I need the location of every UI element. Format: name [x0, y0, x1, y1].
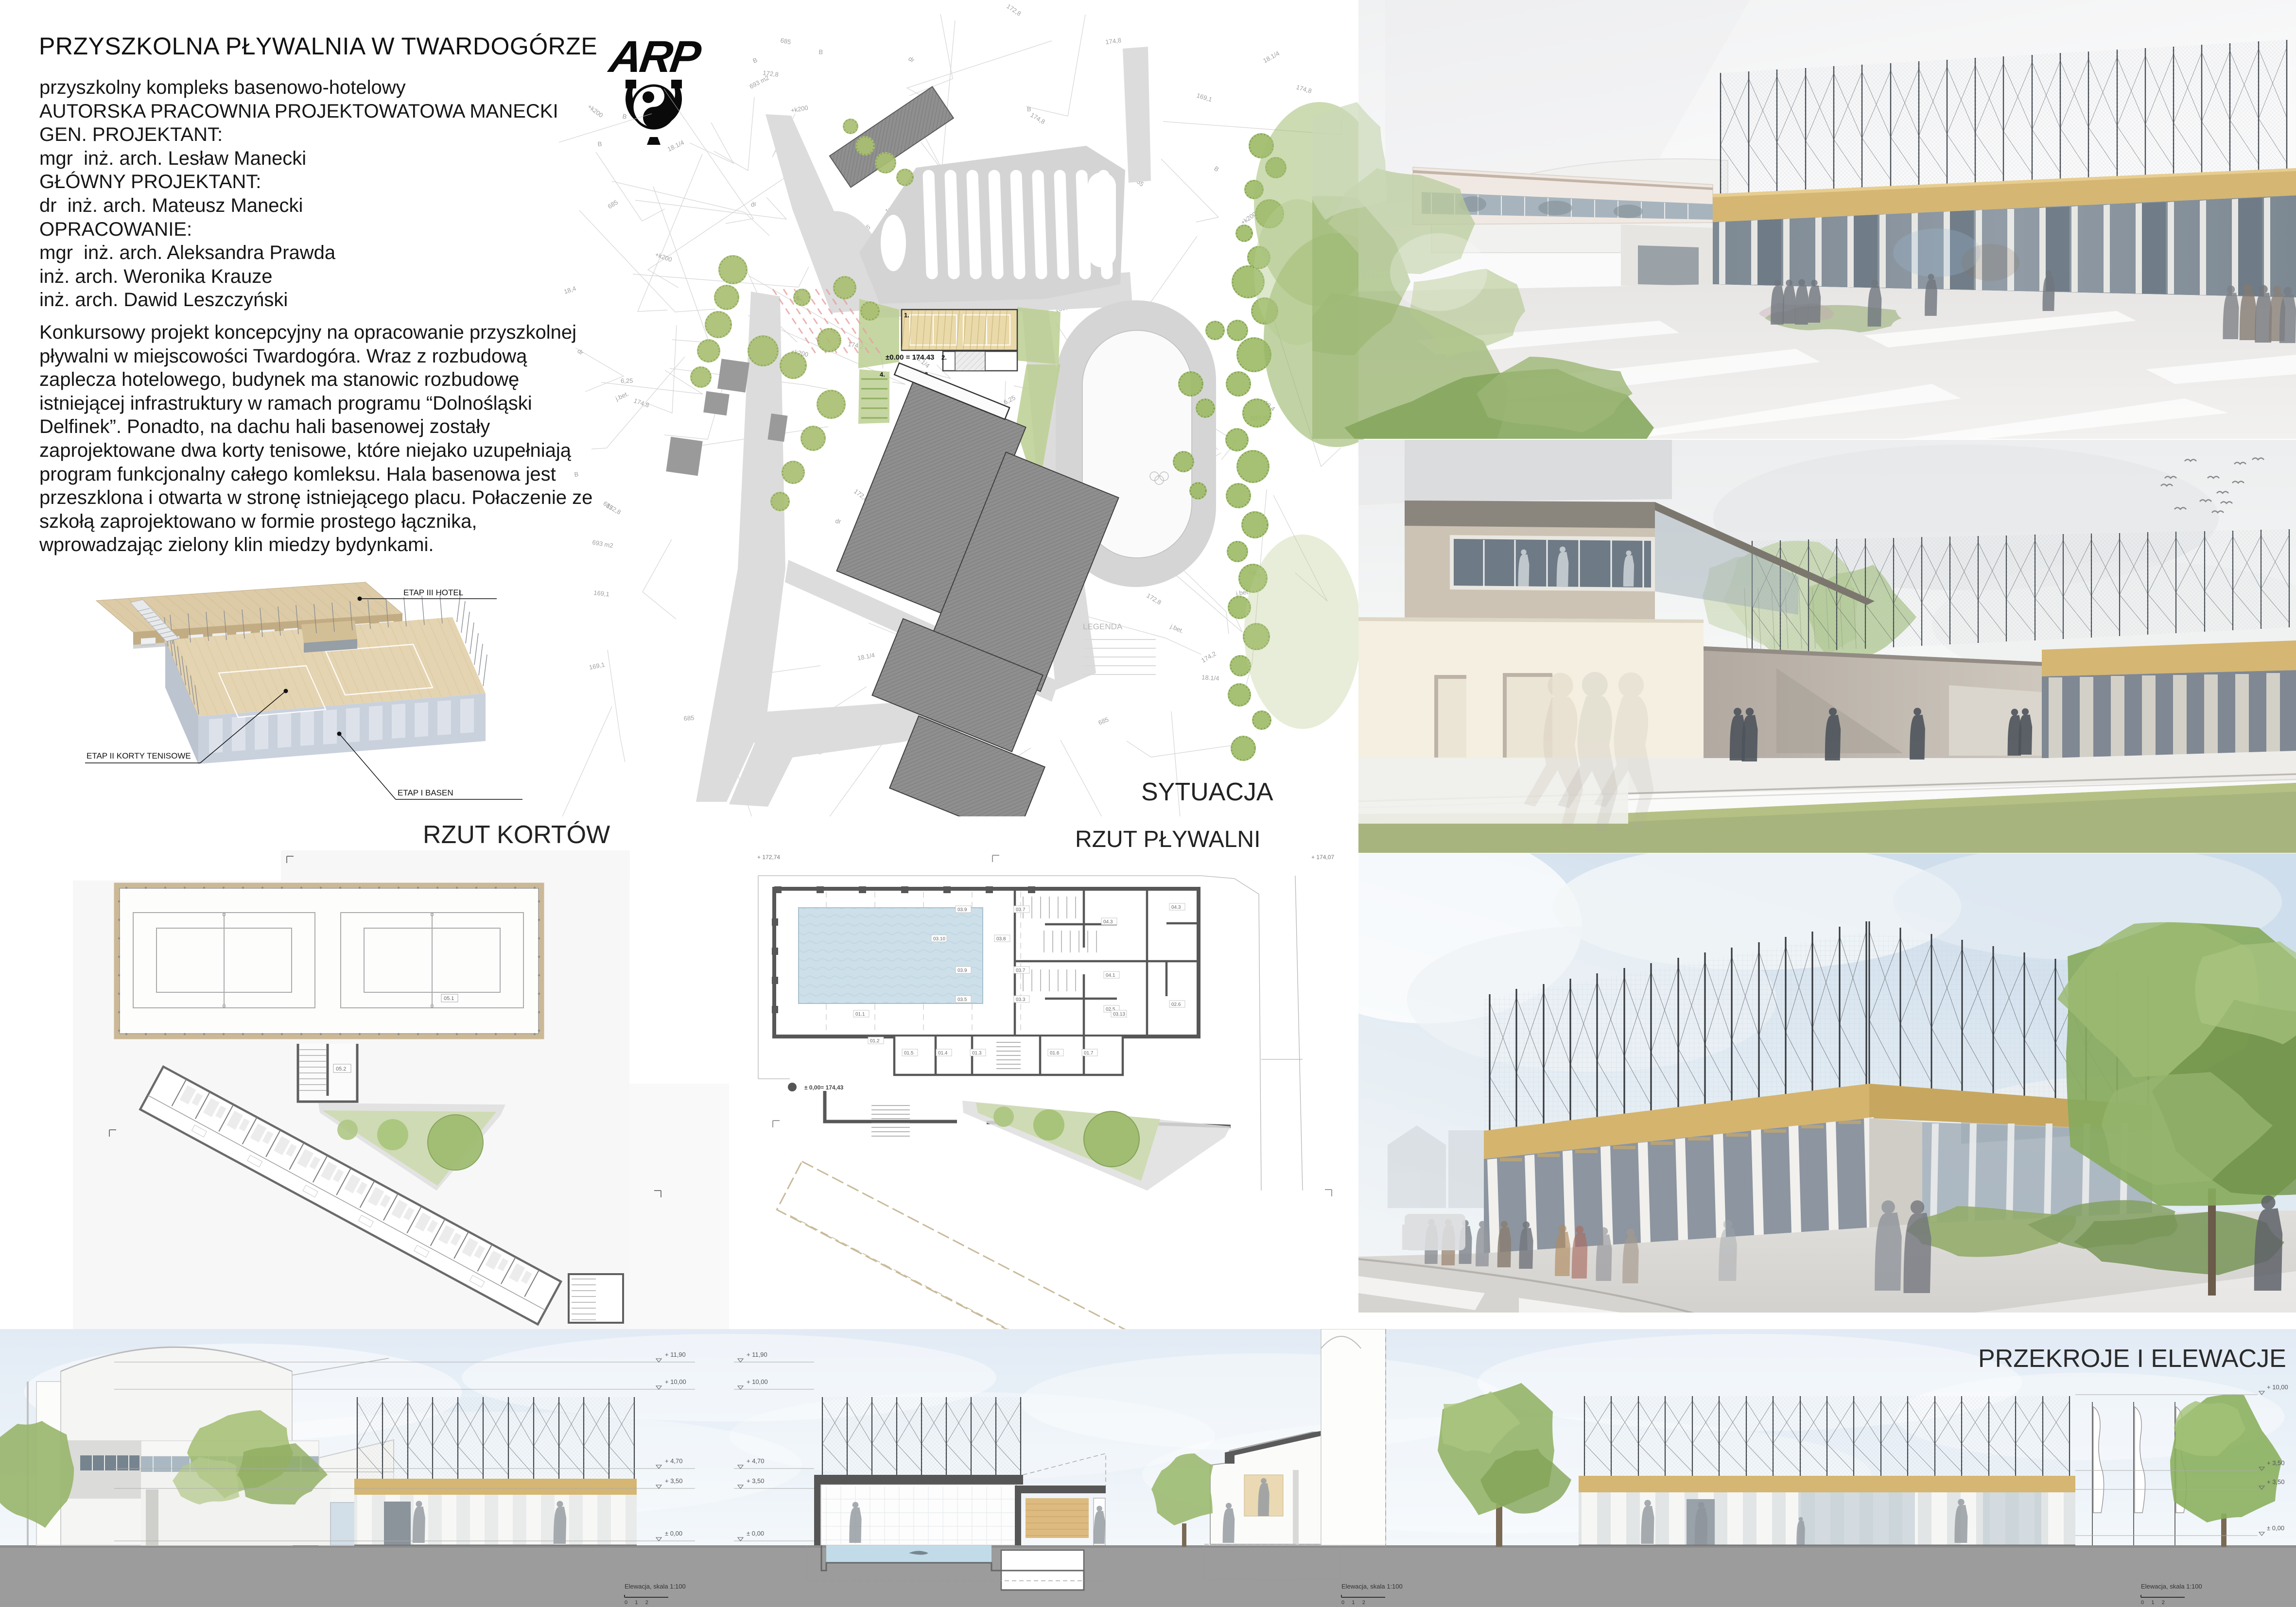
- svg-text:B: B: [752, 56, 758, 65]
- svg-text:01.5: 01.5: [904, 1051, 914, 1056]
- svg-text:6,25: 6,25: [621, 377, 633, 384]
- svg-text:01.7: 01.7: [1084, 1051, 1094, 1056]
- svg-text:05.1: 05.1: [444, 996, 454, 1002]
- svg-text:ETAP II KORTY TENISOWE: ETAP II KORTY TENISOWE: [87, 751, 191, 760]
- svg-text:01.3: 01.3: [972, 1051, 982, 1056]
- svg-text:+k200: +k200: [790, 104, 809, 114]
- svg-text:± 0,00: ± 0,00: [747, 1530, 764, 1537]
- svg-text:LEGENDA: LEGENDA: [1083, 622, 1123, 631]
- svg-text:+ 10,00: + 10,00: [2267, 1383, 2288, 1391]
- svg-text:18,4: 18,4: [563, 285, 577, 295]
- svg-text:dr: dr: [750, 200, 758, 208]
- svg-text:+ 4,70: + 4,70: [665, 1457, 683, 1465]
- svg-text:+ 172,74: + 172,74: [757, 854, 780, 861]
- svg-text:693 m2: 693 m2: [748, 74, 770, 90]
- svg-text:172,8: 172,8: [1005, 2, 1022, 17]
- svg-text:01.2: 01.2: [870, 1038, 880, 1044]
- svg-text:03.10: 03.10: [933, 936, 945, 942]
- svg-text:dr: dr: [576, 347, 585, 356]
- svg-text:+ 11,90: + 11,90: [747, 1351, 767, 1358]
- svg-text:174,8: 174,8: [1029, 111, 1046, 126]
- svg-text:03.5: 03.5: [957, 997, 967, 1002]
- svg-text:169,1: 169,1: [589, 661, 606, 671]
- svg-text:03.3: 03.3: [1016, 997, 1026, 1002]
- svg-text:685: 685: [1097, 716, 1110, 726]
- svg-text:18.1/4: 18.1/4: [857, 651, 875, 662]
- svg-text:+ 10,00: + 10,00: [747, 1378, 768, 1385]
- svg-text:2.: 2.: [941, 354, 947, 361]
- svg-text:685: 685: [780, 36, 791, 46]
- svg-text:18.1/4: 18.1/4: [1262, 50, 1281, 65]
- svg-text:Elewacja, skala 1:100: Elewacja, skala 1:100: [1341, 1583, 1403, 1590]
- svg-text:0 1 2: 0 1 2: [1341, 1600, 1365, 1606]
- svg-text:174,2: 174,2: [1200, 650, 1218, 664]
- svg-text:dr: dr: [907, 55, 916, 64]
- svg-text:169,1: 169,1: [1196, 92, 1213, 104]
- svg-text:174,8: 174,8: [1105, 36, 1122, 46]
- svg-text:01.4: 01.4: [938, 1051, 948, 1056]
- svg-text:Elewacja, skala 1:100: Elewacja, skala 1:100: [2141, 1583, 2202, 1590]
- svg-text:+ 174,07: + 174,07: [1311, 854, 1334, 861]
- svg-text:+ 3,50: + 3,50: [665, 1477, 683, 1485]
- svg-text:B: B: [818, 48, 823, 56]
- svg-text:6,25: 6,25: [1002, 394, 1016, 406]
- svg-text:03.8: 03.8: [996, 936, 1006, 942]
- svg-text:j.bet.: j.bet.: [1169, 622, 1185, 635]
- svg-text:+k200: +k200: [586, 103, 605, 119]
- svg-text:+k200: +k200: [654, 251, 673, 263]
- svg-text:03.13: 03.13: [1113, 1012, 1125, 1017]
- svg-text:+ 4,70: + 4,70: [747, 1457, 765, 1465]
- svg-text:04.3: 04.3: [1171, 905, 1181, 910]
- svg-text:j.bet.: j.bet.: [614, 390, 630, 402]
- svg-text:ETAP III HOTEL: ETAP III HOTEL: [403, 588, 463, 597]
- svg-text:B: B: [1027, 105, 1031, 113]
- svg-text:18.1/4: 18.1/4: [666, 138, 685, 153]
- svg-text:B: B: [597, 140, 602, 148]
- svg-text:03.9: 03.9: [957, 907, 967, 913]
- svg-text:02.6: 02.6: [1171, 1002, 1181, 1007]
- svg-text:01.1: 01.1: [855, 1012, 865, 1017]
- svg-text:B: B: [574, 470, 579, 478]
- svg-text:+ 3,50: + 3,50: [2267, 1478, 2285, 1486]
- svg-text:01.6: 01.6: [1050, 1051, 1060, 1056]
- svg-text:03.7: 03.7: [1016, 968, 1026, 973]
- svg-text:B: B: [622, 112, 627, 120]
- svg-text:dr: dr: [835, 517, 842, 525]
- svg-text:± 0,00: ± 0,00: [665, 1530, 682, 1537]
- svg-text:+ 3,50: + 3,50: [2267, 1459, 2285, 1467]
- svg-text:685: 685: [607, 198, 619, 210]
- svg-text:+ 10,00: + 10,00: [665, 1378, 686, 1385]
- svg-text:4.: 4.: [880, 371, 885, 378]
- svg-text:0 1 2: 0 1 2: [2141, 1600, 2165, 1606]
- svg-text:05.2: 05.2: [336, 1066, 346, 1072]
- svg-text:174,8: 174,8: [1295, 83, 1312, 94]
- svg-text:03.9: 03.9: [957, 968, 967, 973]
- svg-text:B: B: [1213, 165, 1220, 173]
- svg-text:+ 3,50: + 3,50: [747, 1477, 765, 1485]
- svg-text:± 0,00: ± 0,00: [2267, 1524, 2284, 1532]
- svg-text:±0.00 = 174.43: ±0.00 = 174.43: [886, 353, 934, 362]
- svg-text:04.1: 04.1: [1106, 973, 1115, 978]
- svg-text:04.3: 04.3: [1103, 919, 1113, 925]
- svg-text:172,8: 172,8: [1145, 592, 1163, 606]
- svg-text:ETAP I BASEN: ETAP I BASEN: [398, 788, 453, 797]
- svg-text:18.1/4: 18.1/4: [1201, 674, 1219, 682]
- svg-text:Elewacja, skala 1:100: Elewacja, skala 1:100: [625, 1583, 686, 1590]
- svg-text:693 m2: 693 m2: [591, 538, 613, 549]
- svg-text:685: 685: [683, 714, 695, 722]
- svg-text:+ 11,90: + 11,90: [665, 1351, 686, 1358]
- svg-text:03.7: 03.7: [1016, 907, 1026, 913]
- svg-text:0 1 2: 0 1 2: [625, 1600, 648, 1606]
- svg-text:1.: 1.: [904, 311, 909, 319]
- svg-text:± 0,00= 174,43: ± 0,00= 174,43: [804, 1084, 844, 1091]
- svg-text:169,1: 169,1: [593, 589, 610, 598]
